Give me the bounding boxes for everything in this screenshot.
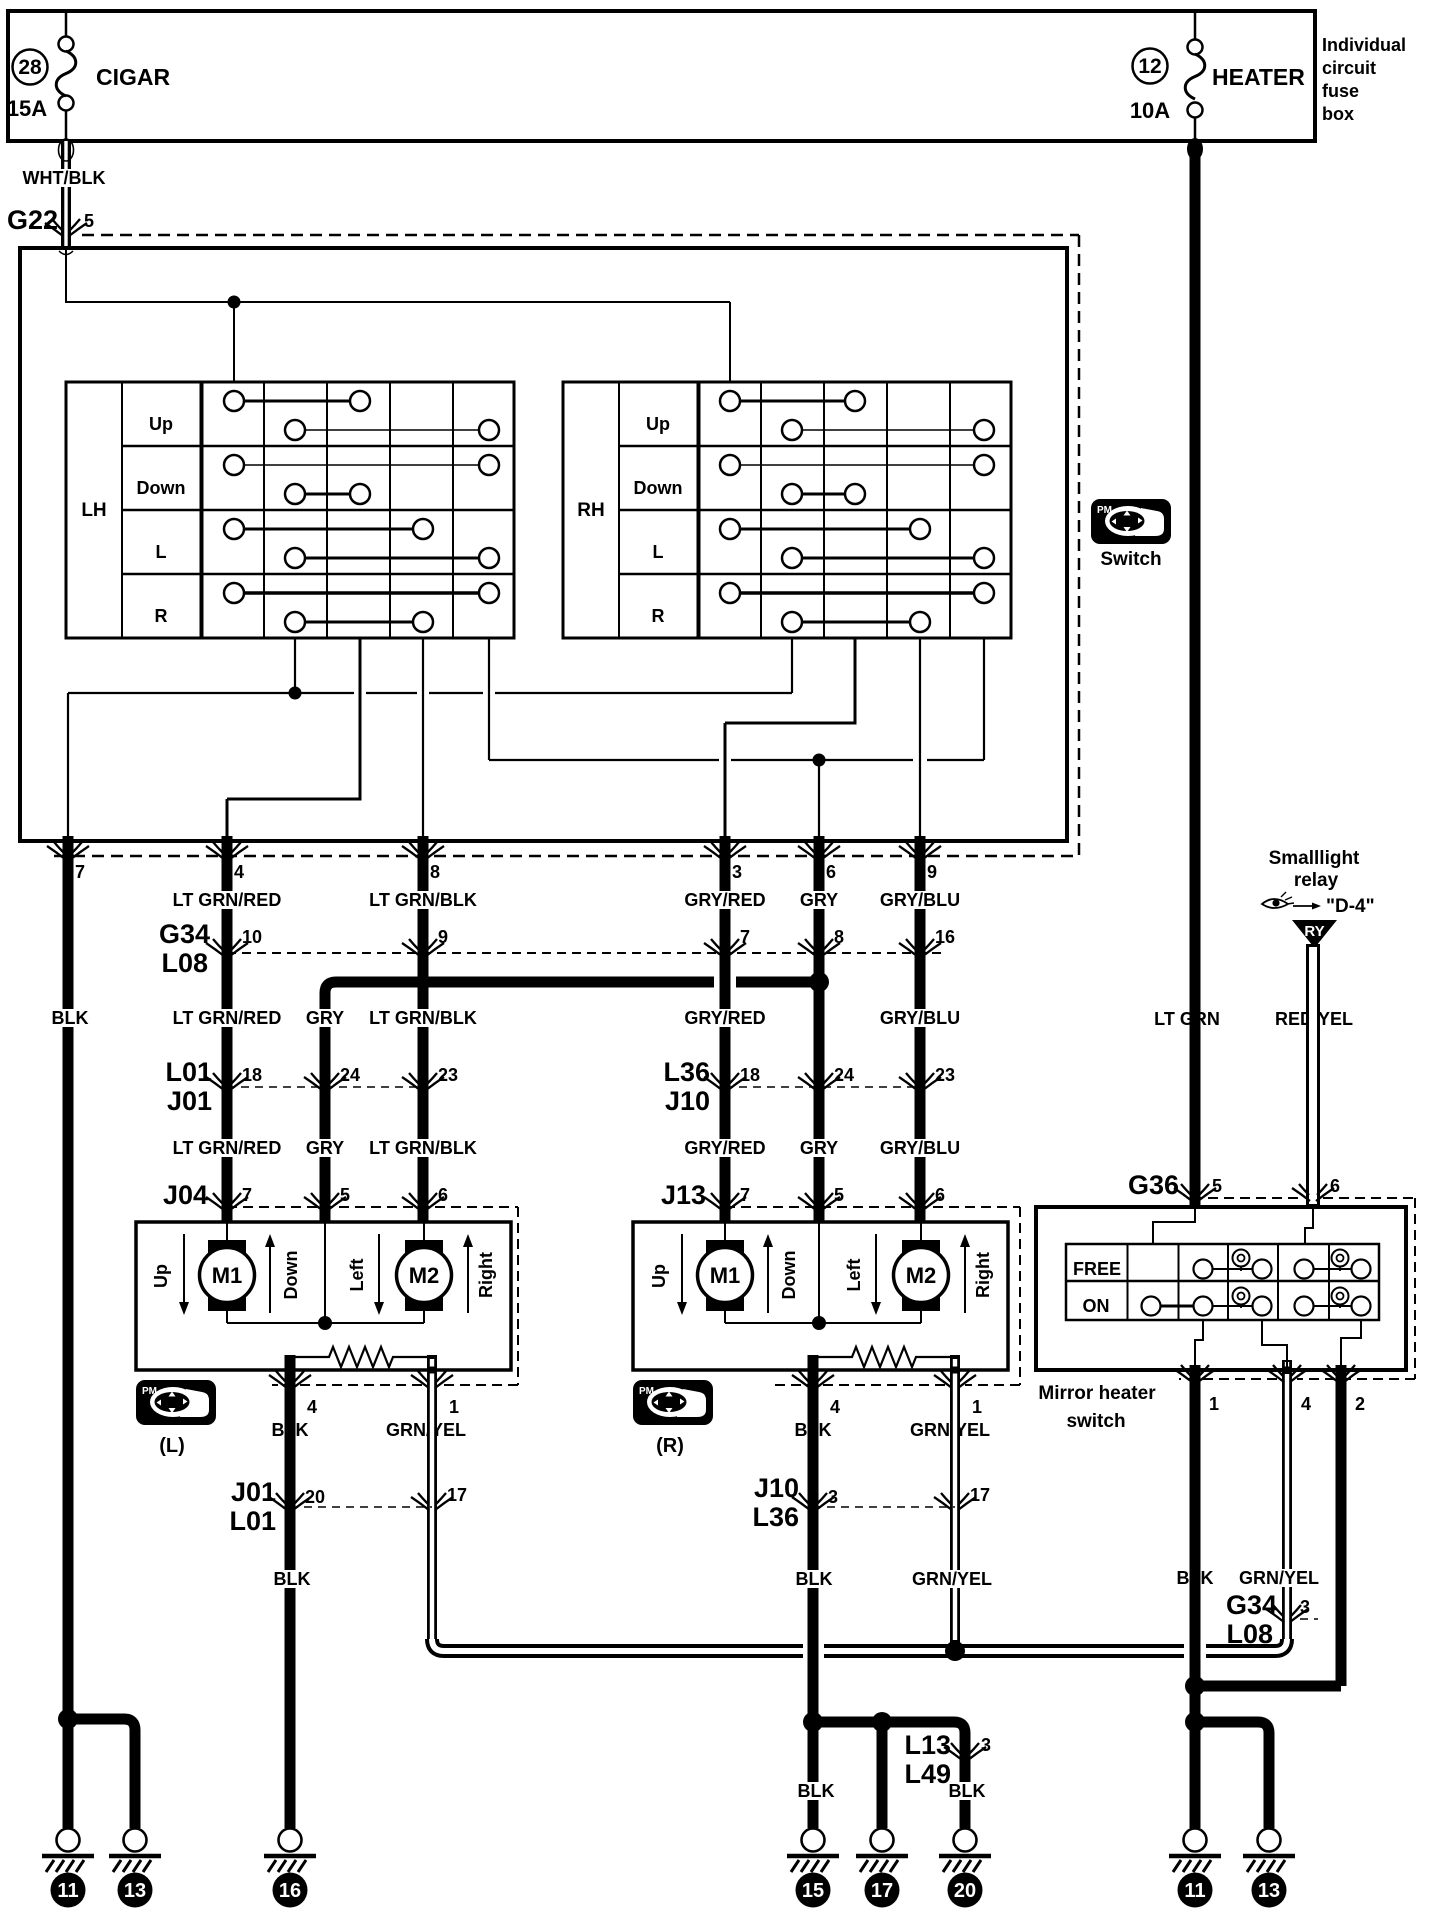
- svg-text:L: L: [653, 542, 664, 562]
- svg-text:GRY/BLU: GRY/BLU: [880, 890, 960, 910]
- svg-text:LT GRN/RED: LT GRN/RED: [173, 1008, 282, 1028]
- svg-text:23: 23: [438, 1065, 458, 1085]
- svg-text:3: 3: [732, 862, 742, 882]
- svg-text:15A: 15A: [7, 96, 47, 121]
- svg-text:8: 8: [834, 927, 844, 947]
- svg-text:LH: LH: [81, 500, 106, 521]
- svg-text:LT GRN/BLK: LT GRN/BLK: [369, 1008, 477, 1028]
- svg-text:CIGAR: CIGAR: [96, 64, 171, 90]
- svg-text:13: 13: [1258, 1880, 1280, 1902]
- svg-text:Up: Up: [646, 414, 670, 434]
- svg-text:GRN/YEL: GRN/YEL: [1239, 1568, 1319, 1588]
- svg-text:M2: M2: [906, 1263, 937, 1288]
- svg-text:BLK: BLK: [274, 1569, 311, 1589]
- svg-text:12: 12: [1138, 55, 1161, 78]
- svg-text:L36: L36: [663, 1057, 710, 1087]
- svg-text:5: 5: [1212, 1176, 1222, 1196]
- svg-text:GRY: GRY: [800, 890, 838, 910]
- svg-text:4: 4: [830, 1397, 840, 1417]
- svg-text:GRY/RED: GRY/RED: [684, 1138, 765, 1158]
- svg-text:G34: G34: [1226, 1590, 1277, 1620]
- svg-text:box: box: [1322, 104, 1354, 124]
- svg-text:Left: Left: [347, 1259, 367, 1292]
- svg-text:G34: G34: [159, 919, 210, 949]
- svg-text:BLK: BLK: [52, 1008, 89, 1028]
- svg-text:Down: Down: [281, 1251, 301, 1300]
- svg-text:M1: M1: [710, 1263, 741, 1288]
- svg-text:4: 4: [1301, 1394, 1311, 1414]
- svg-text:L13: L13: [904, 1730, 951, 1760]
- svg-text:9: 9: [927, 862, 937, 882]
- svg-text:switch: switch: [1066, 1411, 1125, 1432]
- svg-text:Down: Down: [634, 478, 683, 498]
- svg-text:LT GRN/BLK: LT GRN/BLK: [369, 890, 477, 910]
- svg-text:GRY/RED: GRY/RED: [684, 890, 765, 910]
- svg-text:J04: J04: [163, 1180, 208, 1210]
- svg-text:GRY/BLU: GRY/BLU: [880, 1008, 960, 1028]
- svg-text:G36: G36: [1128, 1170, 1179, 1200]
- svg-text:L01: L01: [229, 1506, 276, 1536]
- svg-text:BLK: BLK: [796, 1569, 833, 1589]
- svg-text:7: 7: [740, 1185, 750, 1205]
- svg-text:GRY: GRY: [306, 1008, 344, 1028]
- svg-text:16: 16: [279, 1880, 301, 1902]
- svg-text:Up: Up: [649, 1264, 669, 1288]
- svg-text:HEATER: HEATER: [1212, 64, 1305, 90]
- svg-text:GRN/YEL: GRN/YEL: [386, 1420, 466, 1440]
- svg-text:3: 3: [1300, 1597, 1310, 1617]
- svg-text:L49: L49: [904, 1759, 951, 1789]
- svg-text:ON: ON: [1083, 1296, 1110, 1316]
- svg-text:"D-4": "D-4": [1326, 896, 1375, 917]
- svg-text:BLK: BLK: [798, 1781, 835, 1801]
- svg-text:3: 3: [828, 1487, 838, 1507]
- svg-text:LT GRN: LT GRN: [1154, 1009, 1220, 1029]
- svg-text:11: 11: [57, 1880, 78, 1902]
- svg-text:J01: J01: [231, 1477, 276, 1507]
- svg-text:5: 5: [84, 211, 94, 231]
- svg-text:20: 20: [305, 1487, 325, 1507]
- svg-text:Down: Down: [779, 1251, 799, 1300]
- svg-text:Switch: Switch: [1100, 549, 1161, 570]
- svg-text:18: 18: [740, 1065, 760, 1085]
- svg-text:R: R: [652, 606, 665, 626]
- svg-text:18: 18: [242, 1065, 262, 1085]
- svg-text:(L): (L): [159, 1435, 185, 1457]
- svg-text:13: 13: [124, 1880, 146, 1902]
- svg-text:Smalllight: Smalllight: [1269, 848, 1360, 869]
- svg-text:RH: RH: [577, 500, 604, 521]
- svg-text:BLK: BLK: [949, 1781, 986, 1801]
- svg-text:7: 7: [242, 1185, 252, 1205]
- svg-text:6: 6: [1330, 1176, 1340, 1196]
- svg-text:GRY/BLU: GRY/BLU: [880, 1138, 960, 1158]
- svg-text:R: R: [155, 606, 168, 626]
- svg-text:(R): (R): [656, 1435, 684, 1457]
- svg-text:circuit: circuit: [1322, 58, 1376, 78]
- svg-text:relay: relay: [1294, 870, 1339, 891]
- svg-text:6: 6: [438, 1185, 448, 1205]
- svg-text:6: 6: [826, 862, 836, 882]
- svg-text:28: 28: [18, 56, 42, 79]
- svg-text:LT GRN/RED: LT GRN/RED: [173, 890, 282, 910]
- svg-text:L36: L36: [752, 1502, 799, 1532]
- svg-text:10: 10: [242, 927, 262, 947]
- svg-text:7: 7: [740, 927, 750, 947]
- svg-text:1: 1: [972, 1397, 982, 1417]
- svg-text:J13: J13: [661, 1180, 706, 1210]
- svg-text:23: 23: [935, 1065, 955, 1085]
- svg-text:15: 15: [802, 1880, 824, 1902]
- svg-text:GRY: GRY: [306, 1138, 344, 1158]
- svg-text:Mirror heater: Mirror heater: [1038, 1383, 1156, 1404]
- svg-text:11: 11: [1184, 1880, 1205, 1902]
- svg-text:2: 2: [1355, 1394, 1365, 1414]
- svg-text:17: 17: [970, 1485, 990, 1505]
- svg-text:J01: J01: [167, 1086, 212, 1116]
- svg-text:J10: J10: [665, 1086, 710, 1116]
- svg-text:L01: L01: [165, 1057, 212, 1087]
- svg-text:FREE: FREE: [1073, 1259, 1121, 1279]
- svg-text:L08: L08: [161, 948, 208, 978]
- svg-text:7: 7: [75, 862, 85, 882]
- svg-text:10A: 10A: [1130, 98, 1170, 123]
- svg-text:24: 24: [834, 1065, 854, 1085]
- svg-text:G22: G22: [7, 205, 58, 235]
- svg-text:WHT/BLK: WHT/BLK: [23, 168, 106, 188]
- svg-text:Down: Down: [137, 478, 186, 498]
- svg-text:5: 5: [834, 1185, 844, 1205]
- svg-text:Up: Up: [149, 414, 173, 434]
- svg-text:3: 3: [981, 1735, 991, 1755]
- svg-text:LT GRN/RED: LT GRN/RED: [173, 1138, 282, 1158]
- svg-text:GRY: GRY: [800, 1138, 838, 1158]
- svg-text:Left: Left: [844, 1259, 864, 1292]
- svg-text:4: 4: [307, 1397, 317, 1417]
- svg-text:6: 6: [935, 1185, 945, 1205]
- svg-text:4: 4: [234, 862, 244, 882]
- svg-text:LT GRN/BLK: LT GRN/BLK: [369, 1138, 477, 1158]
- svg-text:17: 17: [871, 1880, 893, 1902]
- svg-text:M1: M1: [212, 1263, 243, 1288]
- svg-text:Right: Right: [973, 1252, 993, 1298]
- svg-text:1: 1: [1209, 1394, 1219, 1414]
- svg-text:Up: Up: [151, 1264, 171, 1288]
- svg-text:24: 24: [340, 1065, 360, 1085]
- svg-text:5: 5: [340, 1185, 350, 1205]
- svg-text:9: 9: [438, 927, 448, 947]
- svg-text:M2: M2: [409, 1263, 440, 1288]
- svg-text:fuse: fuse: [1322, 81, 1359, 101]
- svg-text:Individual: Individual: [1322, 35, 1406, 55]
- svg-text:L08: L08: [1226, 1619, 1273, 1649]
- svg-text:20: 20: [954, 1880, 976, 1902]
- svg-text:1: 1: [449, 1397, 459, 1417]
- svg-text:GRN/YEL: GRN/YEL: [912, 1569, 992, 1589]
- svg-text:16: 16: [935, 927, 955, 947]
- svg-text:Right: Right: [476, 1252, 496, 1298]
- svg-text:8: 8: [430, 862, 440, 882]
- svg-text:L: L: [156, 542, 167, 562]
- svg-text:GRY/RED: GRY/RED: [684, 1008, 765, 1028]
- svg-text:RY: RY: [1304, 923, 1324, 940]
- svg-text:17: 17: [447, 1485, 467, 1505]
